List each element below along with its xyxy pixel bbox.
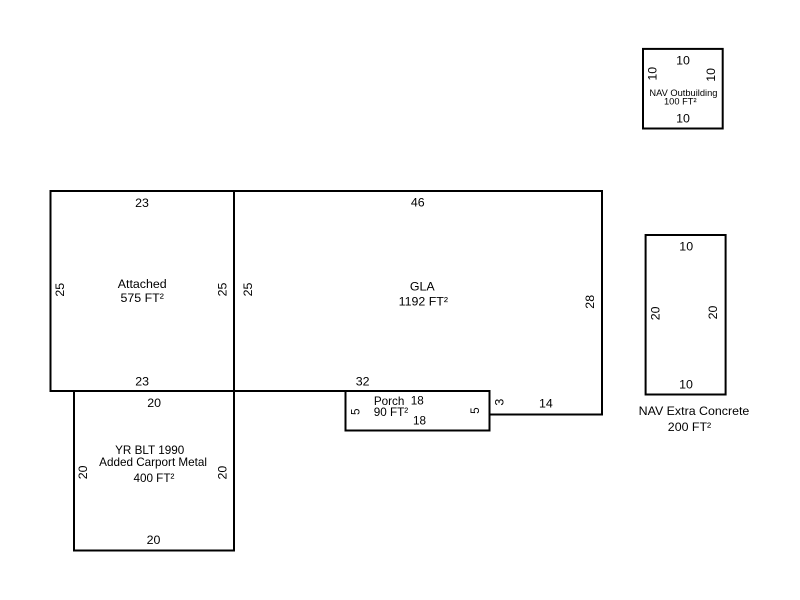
svg-text:GLA: GLA (410, 280, 436, 294)
svg-text:20: 20 (147, 396, 161, 410)
svg-text:575 FT²: 575 FT² (121, 291, 164, 305)
svg-text:NAV Extra Concrete: NAV Extra Concrete (639, 404, 750, 418)
svg-text:200 FT²: 200 FT² (668, 420, 711, 434)
svg-text:10: 10 (676, 112, 690, 126)
svg-text:Added Carport Metal: Added Carport Metal (99, 456, 207, 469)
svg-text:10: 10 (679, 240, 693, 254)
svg-text:32: 32 (356, 375, 370, 389)
svg-text:3: 3 (493, 399, 507, 406)
svg-text:46: 46 (411, 196, 425, 210)
svg-text:18: 18 (413, 415, 426, 428)
svg-text:20: 20 (706, 306, 720, 320)
svg-text:18: 18 (411, 395, 424, 408)
svg-text:20: 20 (147, 533, 161, 547)
svg-text:25: 25 (53, 283, 67, 297)
svg-text:10: 10 (645, 67, 659, 81)
svg-text:100 FT²: 100 FT² (664, 97, 697, 107)
svg-text:23: 23 (135, 375, 149, 389)
svg-text:20: 20 (216, 466, 230, 480)
svg-text:10: 10 (704, 68, 718, 82)
svg-text:20: 20 (76, 465, 90, 479)
svg-text:25: 25 (216, 283, 230, 297)
svg-text:5: 5 (469, 407, 482, 414)
svg-text:1192 FT²: 1192 FT² (399, 295, 448, 309)
svg-text:10: 10 (679, 377, 693, 391)
svg-text:20: 20 (649, 306, 663, 320)
svg-text:14: 14 (539, 397, 553, 411)
svg-text:28: 28 (583, 295, 597, 309)
svg-text:400 FT²: 400 FT² (133, 472, 174, 485)
svg-text:Attached: Attached (118, 277, 167, 291)
svg-text:10: 10 (676, 54, 690, 68)
svg-text:5: 5 (350, 408, 363, 415)
svg-text:23: 23 (135, 196, 149, 210)
svg-text:90 FT²: 90 FT² (374, 406, 409, 419)
svg-text:25: 25 (241, 283, 255, 297)
